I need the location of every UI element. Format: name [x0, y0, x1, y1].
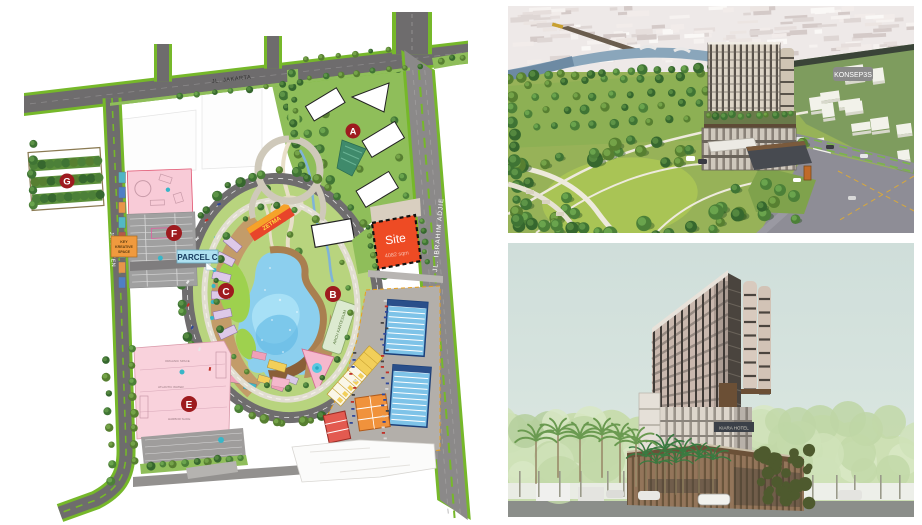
svg-text:E: E — [186, 400, 193, 411]
svg-text:SPACE: SPACE — [118, 250, 131, 254]
svg-text:PARCEL C: PARCEL C — [177, 253, 217, 262]
svg-text:KREATIVE: KREATIVE — [115, 245, 134, 249]
svg-text:HARBOR SLIDE: HARBOR SLIDE — [168, 417, 190, 421]
svg-text:Site: Site — [384, 231, 407, 248]
svg-text:B: B — [329, 290, 336, 301]
svg-text:C: C — [222, 287, 229, 298]
svg-text:F: F — [171, 229, 177, 240]
svg-text:G: G — [63, 177, 70, 188]
svg-text:ATLANTIC WATER: ATLANTIC WATER — [158, 385, 184, 389]
svg-text:KIARA HOTEL: KIARA HOTEL — [719, 426, 749, 431]
svg-text:ORGANIC SPACE: ORGANIC SPACE — [165, 359, 190, 363]
svg-text:A: A — [350, 127, 357, 138]
svg-text:KONSEP3S: KONSEP3S — [834, 72, 872, 79]
svg-text:KEY: KEY — [120, 240, 128, 244]
